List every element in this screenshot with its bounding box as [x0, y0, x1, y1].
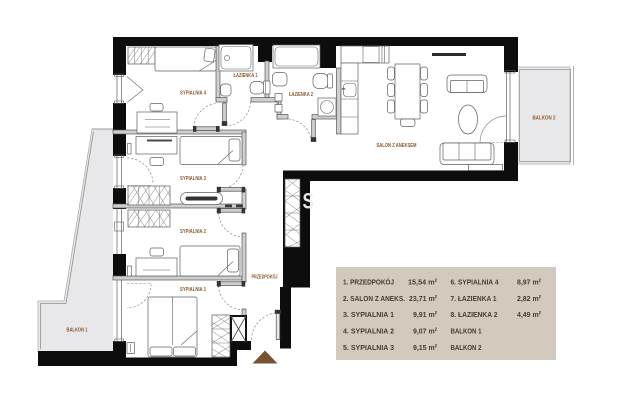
svg-text:BALKON 2: BALKON 2 — [533, 116, 556, 122]
svg-text:3. SYPIALNIA 1: 3. SYPIALNIA 1 — [343, 310, 395, 319]
svg-text:8,97 m²: 8,97 m² — [517, 278, 541, 287]
svg-text:ŁAZIENKA 2: ŁAZIENKA 2 — [289, 92, 313, 98]
svg-text:4. SYPIALNIA 2: 4. SYPIALNIA 2 — [343, 327, 394, 336]
svg-text:5. SYPIALNIA 3: 5. SYPIALNIA 3 — [343, 343, 394, 352]
svg-text:15,54 m²: 15,54 m² — [408, 278, 437, 287]
svg-text:BALKON 1: BALKON 1 — [67, 327, 88, 333]
svg-text:ŁAZIENKA 1: ŁAZIENKA 1 — [234, 73, 258, 79]
svg-text:23,71 m²: 23,71 m² — [409, 294, 437, 303]
svg-text:S: S — [303, 189, 315, 214]
svg-text:9,15 m²: 9,15 m² — [413, 343, 437, 352]
svg-text:SALON Z ANEKSEM: SALON Z ANEKSEM — [377, 143, 417, 149]
svg-text:BALKON 1: BALKON 1 — [451, 327, 483, 336]
svg-text:7. ŁAZIENKA 1: 7. ŁAZIENKA 1 — [451, 294, 498, 303]
svg-text:2,82 m²: 2,82 m² — [517, 294, 541, 303]
svg-text:BALKON 2: BALKON 2 — [451, 343, 482, 352]
svg-text:8. ŁAZIENKA 2: 8. ŁAZIENKA 2 — [451, 310, 498, 319]
svg-text:1. PRZEDPOKÓJ: 1. PRZEDPOKÓJ — [343, 278, 394, 287]
svg-text:9,07 m²: 9,07 m² — [413, 327, 437, 336]
svg-text:SYPIALNIA 1: SYPIALNIA 1 — [180, 287, 206, 293]
svg-text:4,49 m²: 4,49 m² — [517, 310, 541, 319]
svg-text:2. SALON Z ANEKS.: 2. SALON Z ANEKS. — [343, 294, 405, 303]
svg-text:SYPIALNIA 4: SYPIALNIA 4 — [180, 91, 207, 97]
svg-text:6. SYPIALNIA 4: 6. SYPIALNIA 4 — [451, 278, 500, 287]
svg-text:SYPIALNIA 2: SYPIALNIA 2 — [180, 229, 206, 235]
svg-text:SYPIALNIA 3: SYPIALNIA 3 — [180, 176, 206, 182]
svg-text:PRZEDPOKÓJ: PRZEDPOKÓJ — [252, 273, 278, 281]
svg-text:9,91 m²: 9,91 m² — [413, 310, 437, 319]
